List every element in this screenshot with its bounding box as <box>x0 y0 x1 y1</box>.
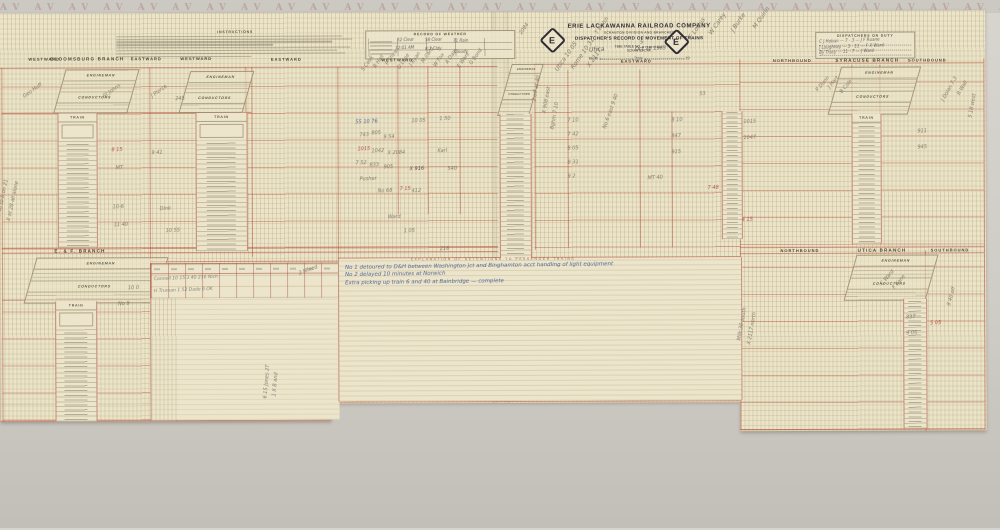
blank-lined-area <box>150 298 339 421</box>
section-header-utica-branch: UTICA BRANCH <box>858 248 907 253</box>
year-label: 19 <box>685 55 689 60</box>
handwriting-mark: 245 <box>175 96 185 102</box>
fine-print-line <box>116 44 273 46</box>
ledger-sheet: ENGINEMANCONDUCTORSENGINEMANCONDUCTORSEN… <box>0 0 1000 530</box>
narrow-columns-strip <box>151 298 177 420</box>
section-header-westward: WESTWARD <box>180 56 212 61</box>
handwriting-mark: 833 <box>369 162 379 168</box>
conductors-label: CONDUCTORS <box>182 92 247 103</box>
fine-print-line <box>116 41 332 43</box>
handwriting-mark: 10-6 <box>113 204 125 210</box>
fine-print-line <box>498 99 532 115</box>
weather-row-label <box>370 49 392 50</box>
red-row-rules <box>534 65 740 248</box>
section-header-syracuse-branch: SYRACUSE BRANCH <box>835 58 899 63</box>
handwriting-mark: 7 42 <box>567 131 578 137</box>
station-column <box>721 111 742 239</box>
train-column-label: TRAIN <box>58 113 96 122</box>
handwriting-mark: 7 15 <box>400 186 411 192</box>
handwriting-mark: 55 10 76 <box>355 119 377 126</box>
train-column-label: TRAIN <box>56 301 96 310</box>
fine-print-line <box>185 83 250 93</box>
conductors-label: CONDUCTORS <box>28 281 161 292</box>
handwriting-mark: 743 <box>359 132 369 138</box>
handwriting-mark: 5 <box>640 39 643 45</box>
handwriting-mark: 540 <box>447 166 457 172</box>
section-header-eastward: EASTWARD <box>131 56 162 61</box>
station-name-rows <box>59 140 97 247</box>
handwriting-mark: Ward <box>388 214 401 220</box>
handwriting-mark: 10 55 <box>166 228 181 235</box>
handwriting-mark: 1 05 <box>404 228 415 234</box>
handwriting-mark: 1042 <box>371 148 384 154</box>
handwritten-note-line: No 2 delayed 10 minutes at Norwich <box>345 271 446 278</box>
station-column-header-box <box>59 312 93 326</box>
section-header-northbound: NORTHBOUND <box>773 58 812 63</box>
handwriting-mark: 9 2 <box>567 173 575 179</box>
handwriting-mark: 216 <box>440 246 450 252</box>
handwriting-mark: 1047 <box>743 135 756 141</box>
section-header-ef-branch: E. & F. BRANCH <box>54 248 105 253</box>
section-header-northbound: NORTHBOUND <box>781 248 820 253</box>
fine-print-line <box>60 81 135 92</box>
handwriting-mark: 7 52 <box>355 160 366 166</box>
conductors-label: CONDUCTORS <box>57 92 132 103</box>
handwriting-layer: 5UticaOct 28 1963E LoftusW CareyJ BurkeM… <box>0 0 999 2</box>
handwriting-mark: 9 05 <box>906 330 917 336</box>
station-column: TRAIN <box>55 301 97 421</box>
station-column: TRAIN <box>57 113 97 247</box>
station-column-header-box <box>62 124 94 138</box>
station-name-rows <box>56 328 96 421</box>
handwriting-mark: 7 10 <box>567 117 578 123</box>
fine-print-line <box>116 47 350 49</box>
station-name-rows <box>500 114 531 270</box>
handwriting-mark: 805 <box>371 130 381 136</box>
fine-print-line <box>116 35 342 37</box>
section-header-bloomsburg-branch: BLOOMSBURG BRANCH <box>50 56 124 61</box>
handwriting-mark: No 68 <box>378 188 393 195</box>
handwriting-mark: 10 05 <box>411 118 426 125</box>
fine-print-line <box>54 103 129 113</box>
handwriting-mark: No 9 <box>118 301 130 307</box>
station-name-rows <box>722 111 741 239</box>
handwriting-mark: 412 <box>412 188 422 194</box>
crew-box: ENGINEMANCONDUCTORS <box>53 69 139 113</box>
handwriting-mark: 837 <box>906 314 916 320</box>
fine-print-line <box>180 103 244 112</box>
handwriting-mark: 8 10 <box>671 117 682 123</box>
handwriting-mark: 1 50 <box>439 116 450 122</box>
section-header-eastward: EASTWARD <box>621 58 652 63</box>
weather-row-label <box>370 41 392 42</box>
handwriting-mark: 5 05 <box>930 320 941 326</box>
handwriting-mark: 10 0 <box>128 285 139 291</box>
fine-print-line <box>829 102 910 114</box>
handwriting-mark: 71 Rain <box>453 38 468 44</box>
weather-row-label <box>370 45 392 46</box>
handwriting-mark: 915 <box>671 149 681 155</box>
handwriting-mark: 53 <box>699 91 706 97</box>
section-header-eastward: EASTWARD <box>271 57 302 62</box>
station-column: TRAIN <box>851 114 881 244</box>
engineman-label: ENGINEMAN <box>63 70 138 81</box>
handwriting-mark: 847 <box>671 133 681 139</box>
handwriting-mark: 58 Clear <box>425 37 442 43</box>
handwriting-mark: 12:01 AM <box>395 45 414 51</box>
weather-title: RECORD OF WEATHER <box>366 31 514 37</box>
handwriting-mark: Dink <box>160 206 172 212</box>
crew-box: ENGINEMANCONDUCTORS <box>178 71 254 113</box>
engineman-label: ENGINEMAN <box>854 255 937 266</box>
section-header-southbound: SOUTHBOUND <box>908 57 947 62</box>
handwriting-mark: 8 15 <box>111 147 122 153</box>
handwriting-mark: Karl <box>437 148 447 154</box>
handwriting-mark: 8 05 <box>567 145 578 151</box>
handwritten-note-line: Extra picking up train 6 and 40 at Bainb… <box>345 278 504 286</box>
handwriting-mark: MT <box>115 165 123 171</box>
handwriting-mark: 9 54 <box>383 134 394 140</box>
ruled-grid-layer: ENGINEMANCONDUCTORSENGINEMANCONDUCTORSEN… <box>0 0 999 2</box>
station-column-header-box <box>200 124 244 138</box>
train-column-label: TRAIN <box>852 114 880 123</box>
handwriting-mark: Oct 28 1963 <box>635 45 666 52</box>
handwritten-note-line: No 1 detoured to D&H between Washington … <box>345 261 613 271</box>
fine-print-line <box>116 50 337 52</box>
fine-print-line <box>31 269 164 281</box>
station-name-rows <box>197 140 247 251</box>
conductors-label: CONDUCTORS <box>503 90 536 99</box>
fine-print-line <box>116 52 345 54</box>
handwriting-mark: X 2084 <box>387 150 405 157</box>
section-header-southbound: SOUTHBOUND <box>931 247 970 252</box>
station-column: TRAIN <box>195 113 247 251</box>
station-column <box>499 114 532 270</box>
handwriting-mark: X 916 <box>409 166 424 173</box>
handwriting-mark: 1015 <box>357 146 370 152</box>
handwriting-mark: 9 41 <box>151 150 162 156</box>
handwriting-mark: 52 Clear <box>397 37 414 43</box>
engineman-label: ENGINEMAN <box>34 258 167 269</box>
handwriting-mark: 7 48 <box>708 185 719 191</box>
handwriting-mark: 911 <box>917 128 927 134</box>
handwriting-mark: 4 15 <box>742 217 753 223</box>
engineman-label: ENGINEMAN <box>510 65 543 74</box>
explanation-area: EXPLANATION OF DETENTIONS TO PASSENGER T… <box>338 257 742 401</box>
station-name-rows <box>853 123 881 244</box>
handwriting-mark: Pusher <box>359 176 376 183</box>
engineman-label: ENGINEMAN <box>839 68 920 79</box>
handwriting-mark: 8 31 <box>567 159 578 165</box>
handwriting-mark: 1015 <box>743 119 756 125</box>
fine-print-line <box>116 38 352 40</box>
engineman-label: ENGINEMAN <box>188 72 253 83</box>
handwriting-mark: 905 <box>383 164 393 170</box>
handwriting-mark: MT 40 <box>647 175 663 182</box>
crew-box: ENGINEMANCONDUCTORS <box>24 257 169 304</box>
train-column-label: TRAIN <box>196 113 246 122</box>
handwriting-mark: 945 <box>917 144 927 150</box>
handwriting-mark: 11 40 <box>114 222 129 229</box>
instructions-title: INSTRUCTIONS <box>112 28 358 34</box>
